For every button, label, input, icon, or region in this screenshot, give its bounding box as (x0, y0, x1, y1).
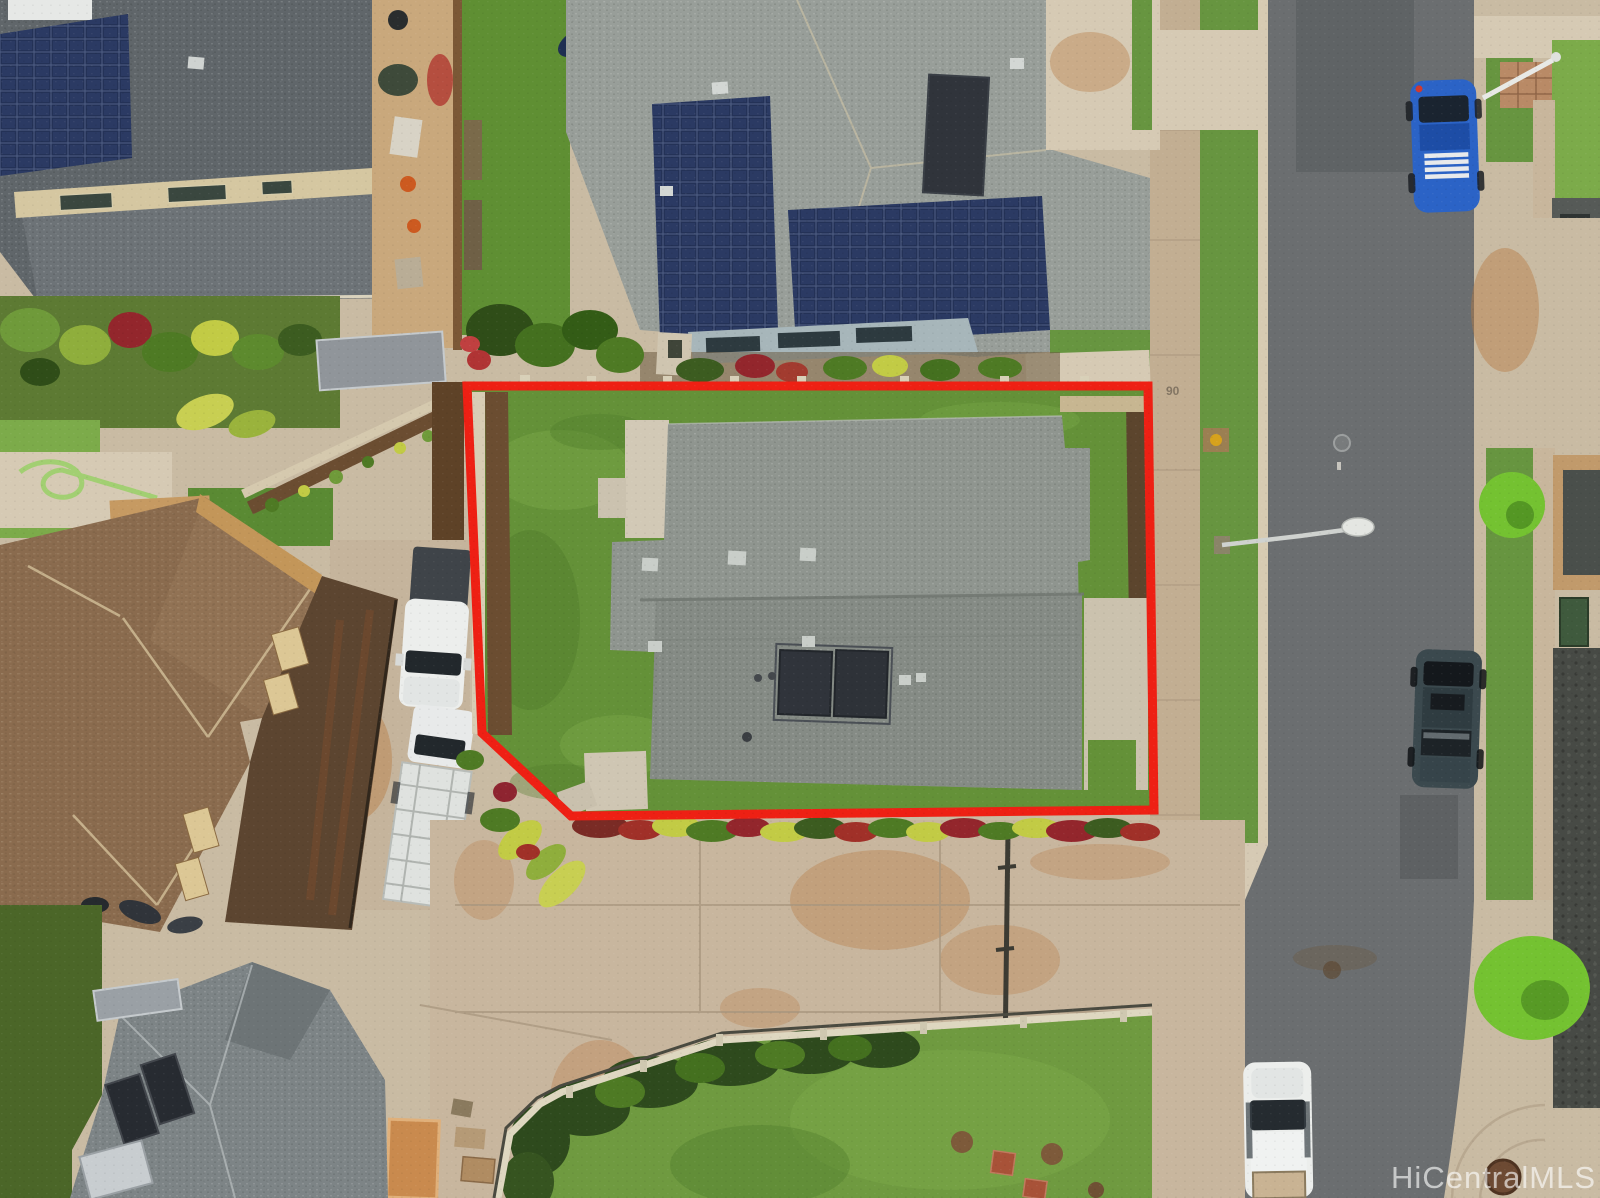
photo-grain-overlay (0, 0, 1600, 1198)
aerial-photo: 90 (0, 0, 1600, 1198)
watermark-text: HiCentralMLS (1391, 1160, 1596, 1195)
aerial-photo-canvas: 90 (0, 0, 1600, 1198)
